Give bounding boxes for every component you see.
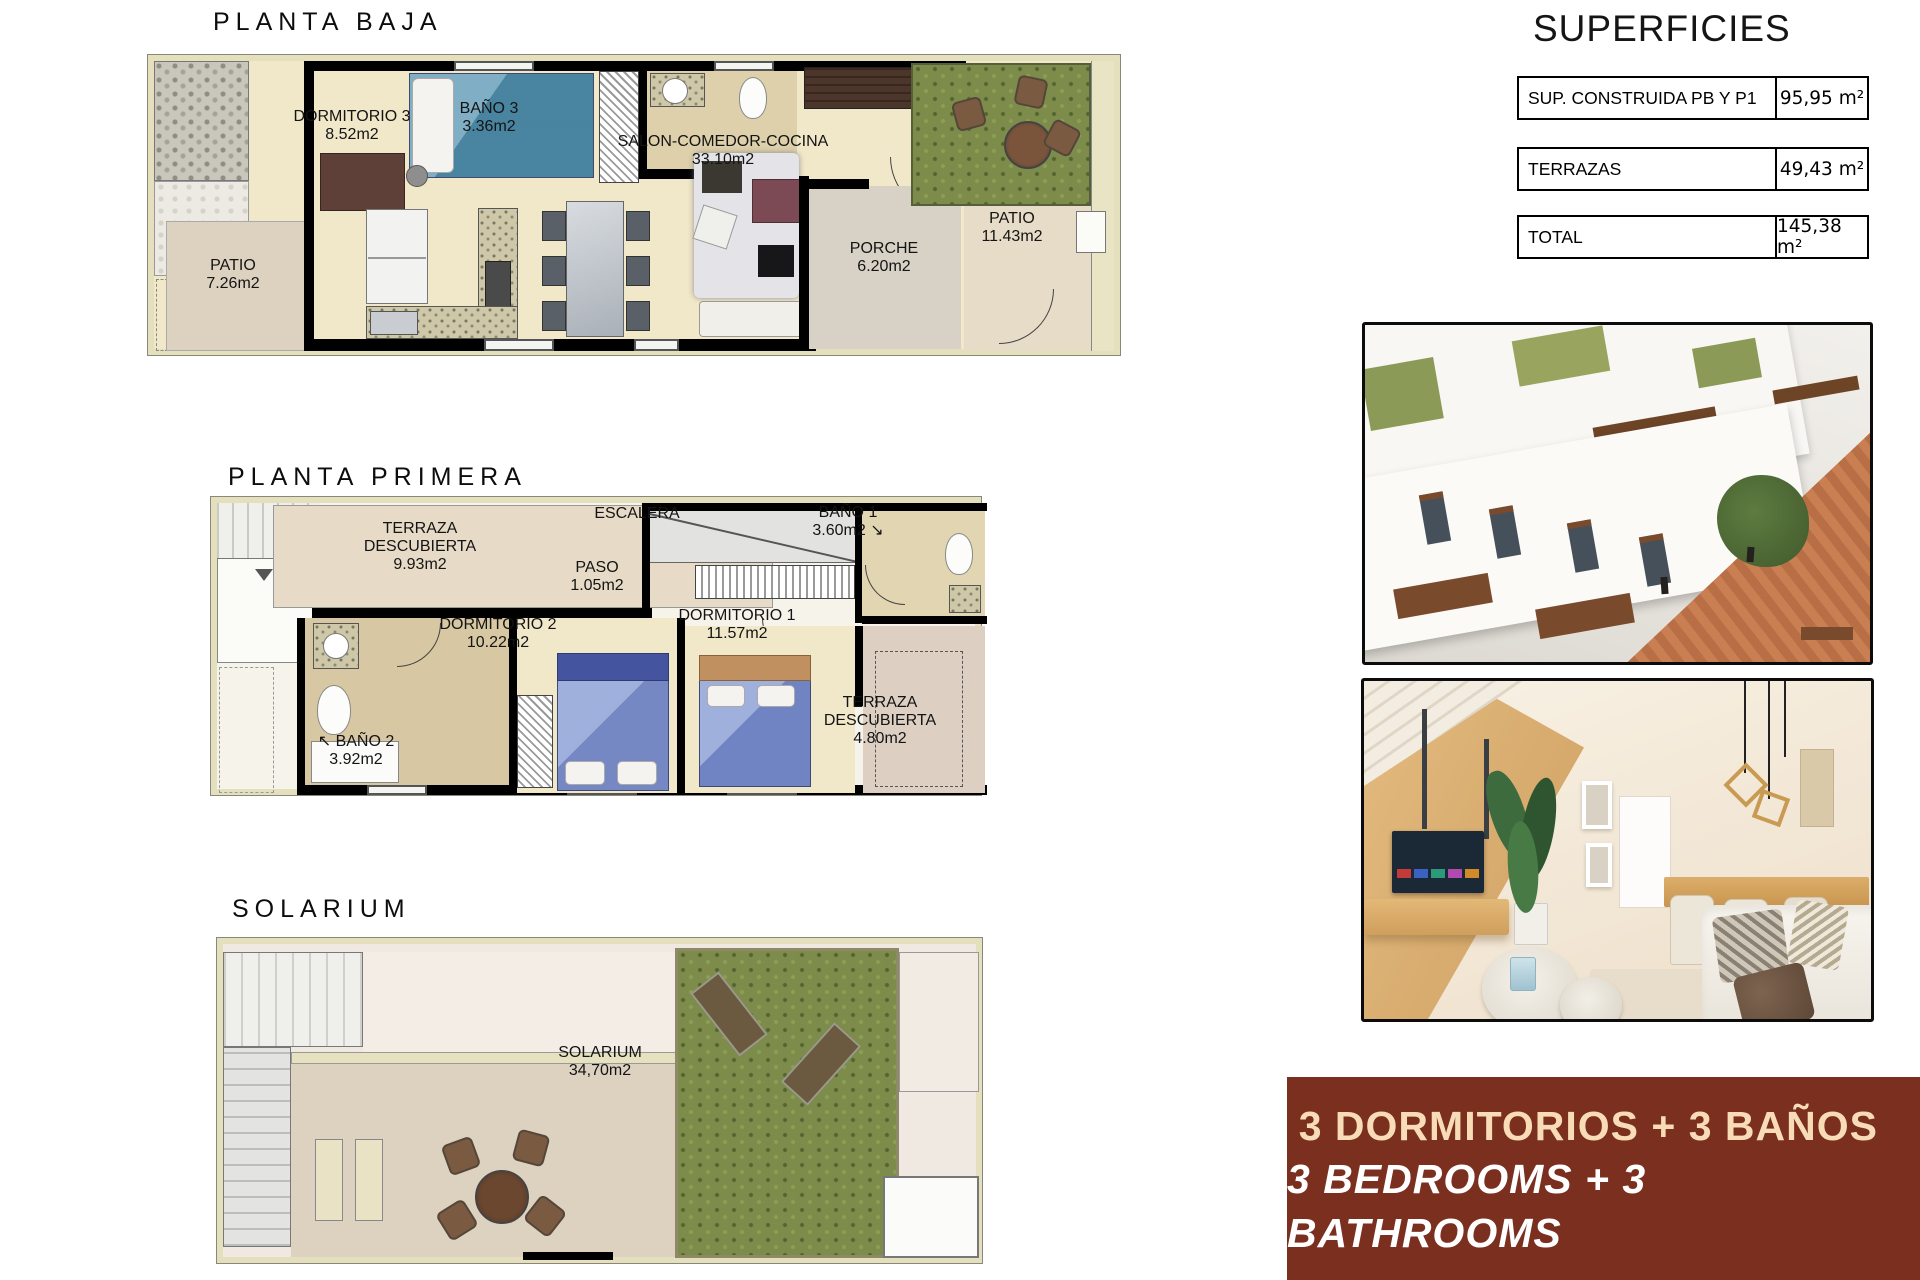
closet [695,565,855,599]
kitchen-cabinet [1800,749,1834,827]
solarium-table [475,1170,529,1224]
gate [1076,211,1106,253]
solarium-title: SOLARIUM [232,895,411,924]
gravel-area [154,61,249,181]
toilet [739,77,767,119]
chair [542,256,566,286]
tv-thumbnail [1431,869,1445,878]
row-value: 145,38 m² [1775,217,1867,257]
window [454,61,534,71]
stair-railing-post [1422,709,1427,829]
exterior-render-photo [1362,322,1873,665]
roof-lawn [1362,357,1444,431]
wall [677,618,685,795]
bed-pillow [412,78,454,173]
room-label-escalera: ESCALERA [594,505,679,523]
wall [862,616,987,624]
dashed-area [219,667,274,793]
right-boundary-wall [1091,61,1114,351]
room-label-salon: SALON-COMEDOR-COCINA33.10m2 [618,133,829,169]
stairs-flight [223,1047,291,1247]
chair [542,301,566,331]
row-label: SUP. CONSTRUIDA PB Y P1 [1519,78,1775,118]
room-label-patio-left: PATIO7.26m2 [206,257,259,293]
tv-screen [1392,831,1484,893]
garden-chair [1013,74,1049,110]
bed-pillow [617,761,657,785]
toilet [945,533,973,575]
wood-deck [804,67,919,109]
row-value: 95,95 m² [1775,78,1867,118]
wall [809,179,869,189]
superficies-table: SUP. CONSTRUIDA PB Y P1 95,95 m² TERRAZA… [1517,0,1869,270]
table-row: TOTAL 145,38 m² [1517,215,1869,259]
window [484,339,554,351]
sofa-cushion-pattern [1787,899,1849,971]
appliance-divider [368,257,426,259]
bed-pillow [757,685,795,707]
sink [323,633,349,659]
tv-console [1364,899,1509,935]
planta-baja-title: PLANTA BAJA [213,8,443,37]
wardrobe [517,695,553,788]
sink [662,78,688,104]
chair [626,256,650,286]
planta-baja-floorplan [148,55,1120,355]
wall [523,1252,613,1260]
banner: 3 DORMITORIOS + 3 BAÑOS 3 BEDROOMS + 3 B… [1287,1077,1920,1280]
planta-primera-title: PLANTA PRIMERA [228,463,527,492]
room-label-bano-3: BAÑO 33.36m2 [460,100,519,136]
window [367,785,427,795]
utility-box [883,1176,979,1258]
bed-headboard [699,655,811,681]
room-label-bano-1: BAÑO 13.60m2 ↘ [812,504,883,540]
row-value: 49,43 m² [1775,149,1867,189]
sofa [699,301,815,337]
bench [1801,627,1853,640]
person-figure [1746,547,1754,562]
dining-table [566,201,624,337]
room-label-dormitorio-2: DORMITORIO 210.22m2 [439,616,556,652]
chair [626,301,650,331]
pendant-cord [1768,681,1770,799]
pendant-cord [1784,681,1786,757]
brochure-page: PLANTA BAJA [0,0,1920,1280]
cushion [758,245,794,277]
wall-art-frame [1582,781,1612,829]
tv-thumbnail [1414,869,1428,878]
stairs-top [223,952,363,1047]
room-label-terraza-9: TERRAZA DESCUBIERTA9.93m2 [345,520,495,574]
stair-direction-arrow [255,569,273,581]
solarium-floorplan [217,938,982,1263]
wall-art-frame [1586,843,1612,887]
banner-line-english: 3 BEDROOMS + 3 BATHROOMS [1287,1153,1878,1260]
room-label-paso: PASO1.05m2 [570,559,623,595]
coffee-table [752,179,800,223]
side-terrace [899,952,979,1092]
row-label: TOTAL [1519,217,1775,257]
kitchen-sink [370,311,418,335]
carafe [1510,957,1536,991]
bed-pillow [707,685,745,707]
interior-render-photo [1361,678,1874,1022]
toilet [317,685,351,735]
banner-line-spanish: 3 DORMITORIOS + 3 BAÑOS [1299,1100,1878,1153]
upper-tile-floor [363,952,677,1057]
room-label-dormitorio-3: DORMITORIO 38.52m2 [293,108,410,144]
chair [542,211,566,241]
bed-pillow [565,761,605,785]
tv-thumbnail [1448,869,1462,878]
table-row: TERRAZAS 49,43 m² [1517,147,1869,191]
table-row: SUP. CONSTRUIDA PB Y P1 95,95 m² [1517,76,1869,120]
chair [626,211,650,241]
row-label: TERRAZAS [1519,149,1775,189]
tv-thumbnail [1397,869,1411,878]
room-label-bano-2: ↖ BAÑO 23.92m2 [318,733,395,769]
left-wall [304,61,314,351]
window [634,339,679,351]
person-figure [1660,577,1668,594]
room-label-patio-right: PATIO11.43m2 [981,210,1042,246]
desk [320,153,405,211]
lounger [315,1139,343,1221]
sink-counter [949,585,981,613]
desk-chair [406,165,428,187]
bottom-wall [304,339,816,351]
lounger [355,1139,383,1221]
tree [1717,475,1809,567]
tv-thumbnail [1465,869,1479,878]
pendant-cord [1744,681,1746,773]
window [714,61,774,71]
bed-headboard [557,653,669,681]
wall [799,176,809,351]
room-label-dormitorio-1: DORMITORIO 111.57m2 [678,607,795,643]
room-label-solarium: SOLARIUM34,70m2 [558,1044,642,1080]
wall [297,618,305,795]
room-label-porche: PORCHE6.20m2 [850,240,918,276]
room-label-terraza-4: TERRAZA DESCUBIERTA4.80m2 [814,694,946,748]
